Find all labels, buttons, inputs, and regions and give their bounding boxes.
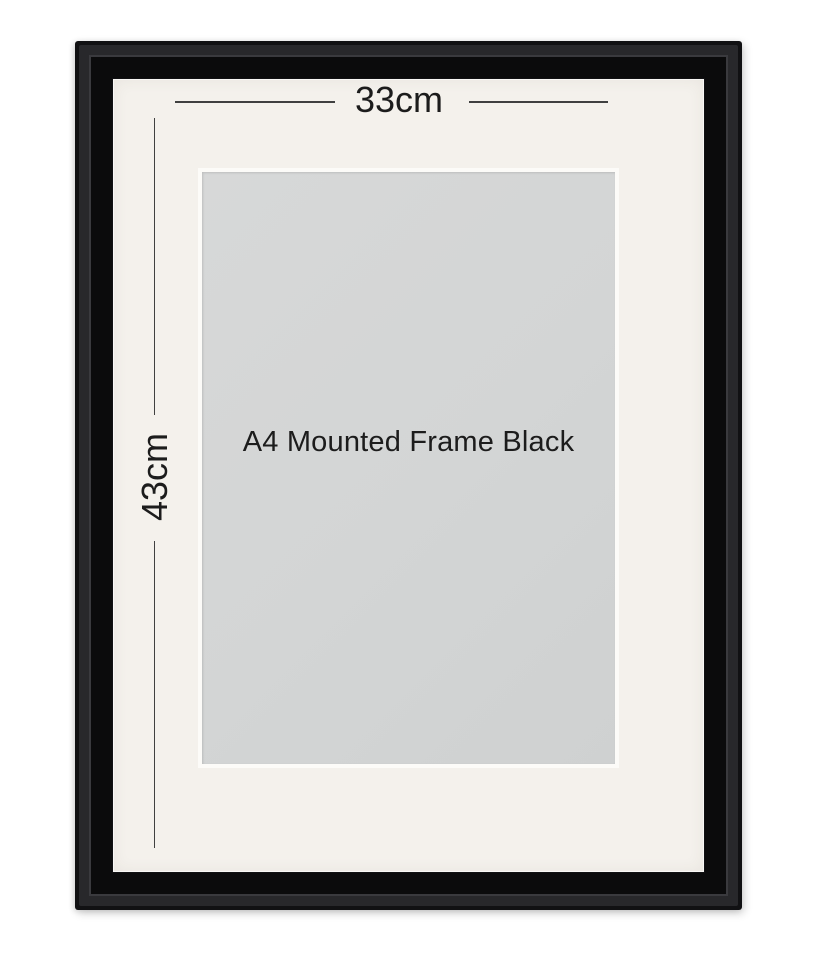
height-dimension-annotation: 43cm [136,118,173,850]
height-dimension-line-top-segment [154,118,156,415]
product-photo-canvas: A4 Mounted Frame Black 33cm 43cm [0,0,820,960]
product-name-label: A4 Mounted Frame Black [202,426,615,459]
width-dimension-label: 33cm [355,82,443,118]
width-dimension-line-right-segment [469,101,608,103]
frame-top-moulding-bevel [80,46,737,58]
frame-bottom-moulding-bevel [80,884,737,905]
width-dimension-annotation: 33cm [175,84,608,120]
width-dimension-line-left-segment [175,101,335,103]
height-dimension-label: 43cm [137,433,173,521]
mat-board: A4 Mounted Frame Black [113,79,704,872]
picture-frame: A4 Mounted Frame Black [75,41,742,910]
picture-opening: A4 Mounted Frame Black [202,172,615,764]
height-dimension-line-bottom-segment [154,541,156,848]
